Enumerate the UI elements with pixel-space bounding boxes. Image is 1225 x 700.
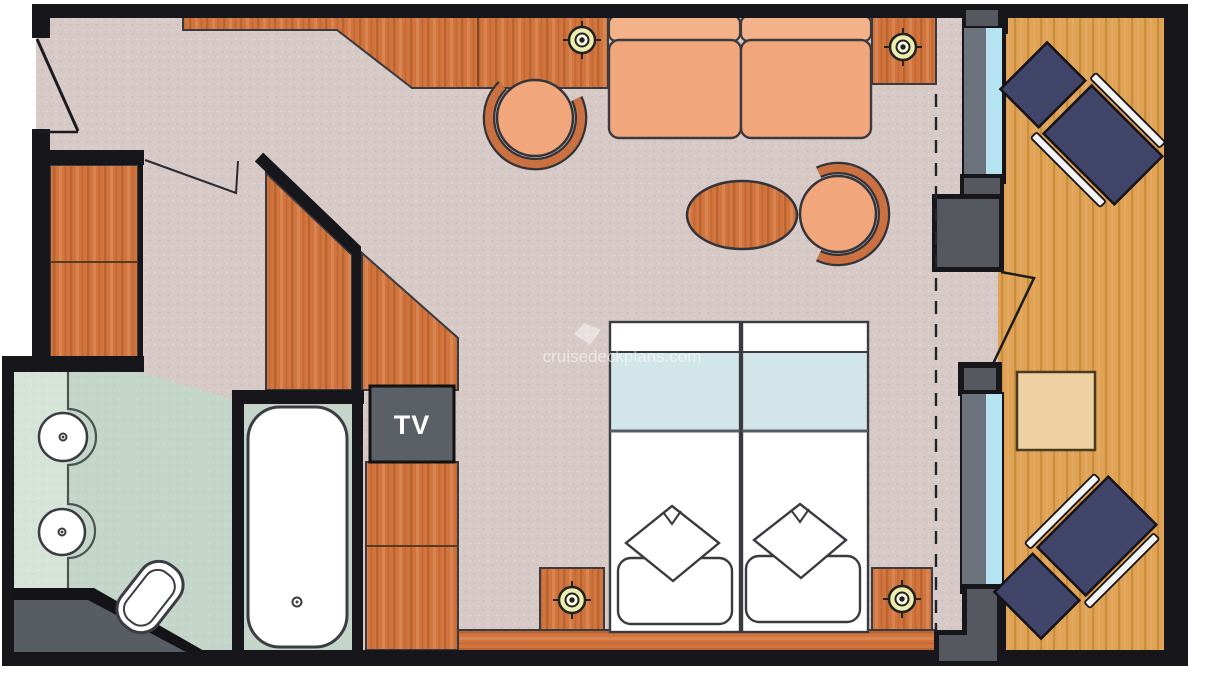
sink-icon: [39, 509, 85, 555]
closet-icon: [50, 165, 138, 360]
tv-icon: TV: [370, 386, 454, 462]
tv-cabinet-icon: [366, 462, 458, 650]
bathtub-icon: [248, 407, 347, 647]
balcony-side-table-icon: [1017, 372, 1095, 450]
cabin-floorplan: TV: [0, 0, 1225, 700]
watermark-text: cruisedeckplans.com: [543, 347, 702, 366]
window-icon: [960, 392, 1004, 594]
sofa-icon: [609, 16, 871, 138]
coffee-table-icon: [687, 181, 797, 249]
tv-label: TV: [394, 410, 431, 440]
sink-icon: [39, 413, 87, 461]
floorplan-svg: TV: [0, 0, 1225, 700]
window-icon: [962, 26, 1006, 184]
